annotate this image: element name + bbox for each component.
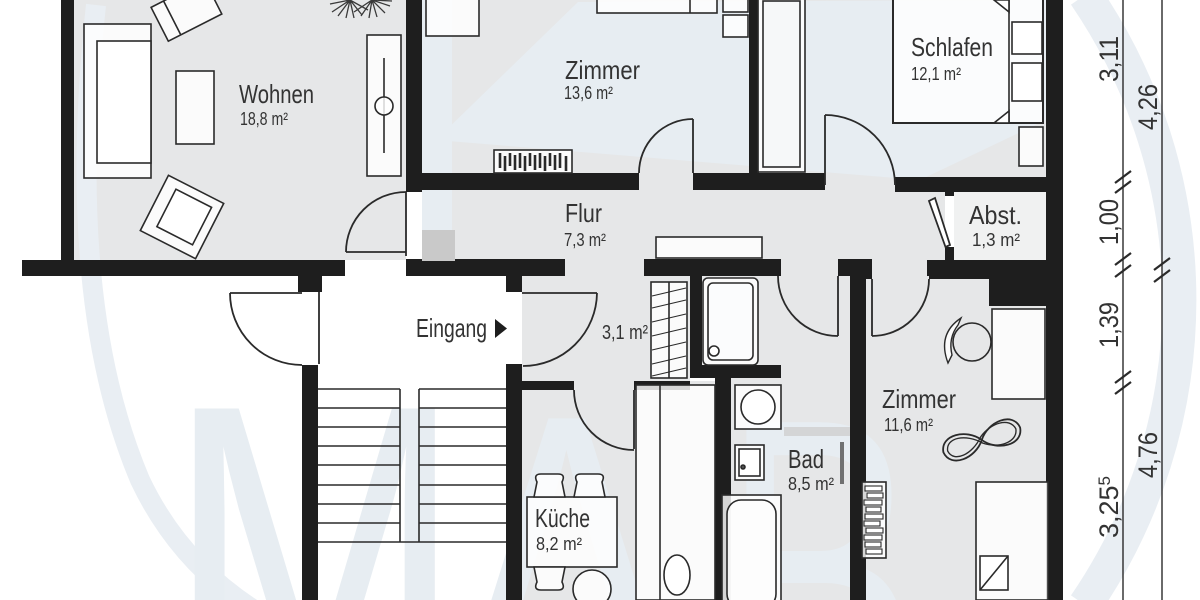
svg-text:Bad: Bad [788,444,824,474]
svg-text:Eingang: Eingang [416,313,487,343]
svg-text:4,26: 4,26 [1133,84,1163,130]
svg-text:8,5 m²: 8,5 m² [788,474,834,494]
svg-text:Zimmer: Zimmer [565,55,640,85]
svg-text:Schlafen: Schlafen [911,32,993,62]
svg-text:3,11: 3,11 [1094,36,1124,82]
svg-text:Küche: Küche [535,503,590,533]
svg-text:1,39: 1,39 [1094,302,1124,348]
svg-text:18,8 m²: 18,8 m² [240,109,288,129]
svg-text:Zimmer: Zimmer [882,384,956,414]
svg-text:13,6 m²: 13,6 m² [564,83,613,103]
svg-text:1,00: 1,00 [1094,199,1124,245]
svg-text:3,1 m²: 3,1 m² [602,322,648,344]
svg-text:1,3 m²: 1,3 m² [972,230,1020,250]
svg-text:7,3 m²: 7,3 m² [564,230,606,250]
svg-text:8,2 m²: 8,2 m² [536,534,582,554]
svg-text:11,6 m²: 11,6 m² [884,415,933,435]
svg-text:Abst.: Abst. [969,200,1022,230]
svg-text:4,76: 4,76 [1133,432,1163,478]
svg-text:Wohnen: Wohnen [239,79,314,109]
svg-text:Flur: Flur [565,198,602,228]
svg-text:12,1 m²: 12,1 m² [911,64,961,84]
